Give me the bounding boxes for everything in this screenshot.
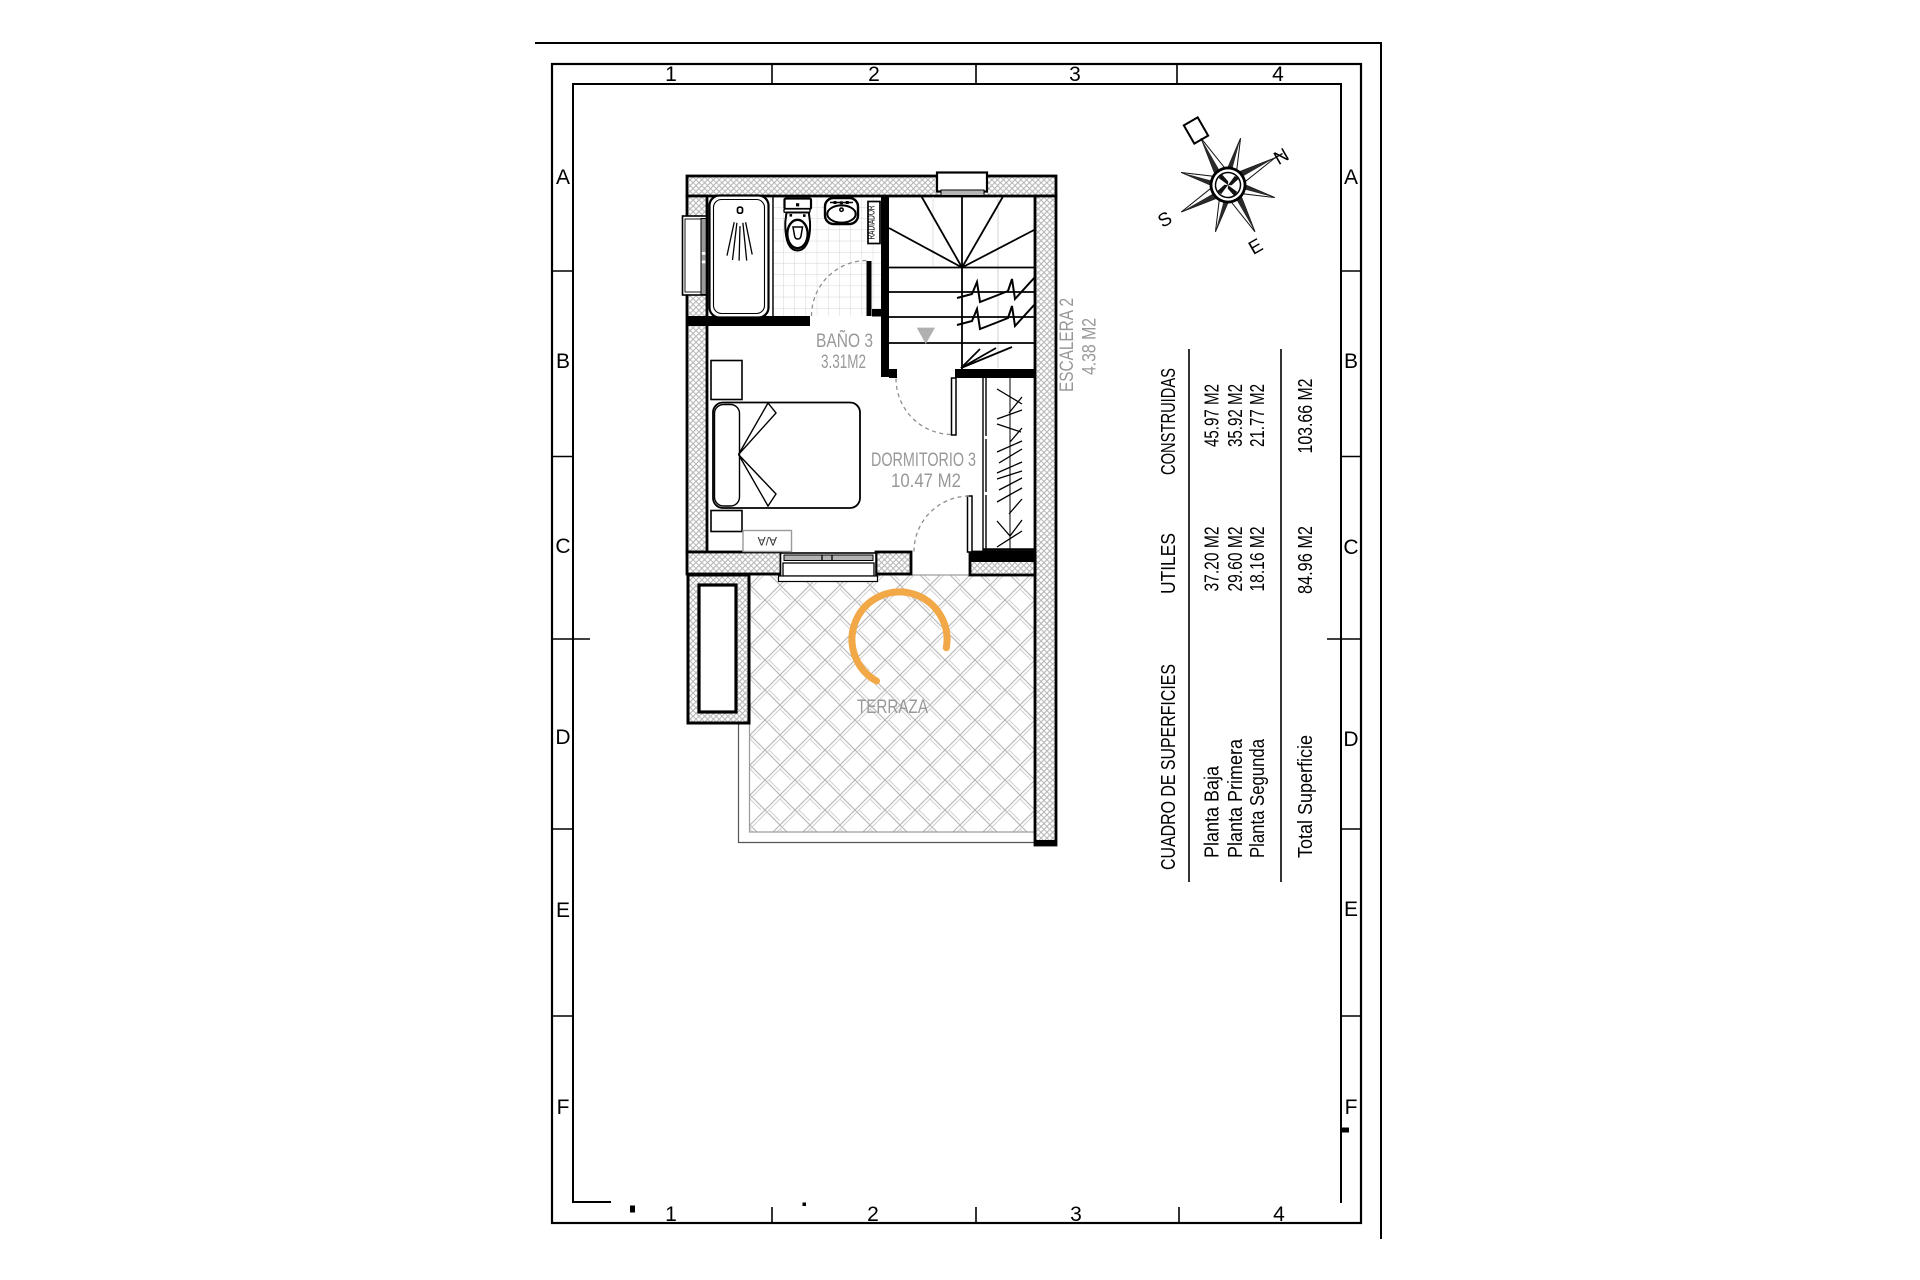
svg-text:D: D [555, 726, 570, 749]
svg-text:37.20 M2: 37.20 M2 [1202, 527, 1224, 592]
svg-text:CUADRO DE SUPERFICIES: CUADRO DE SUPERFICIES [1158, 664, 1180, 870]
svg-text:3: 3 [1070, 1203, 1082, 1226]
svg-text:ESCALERA 2: ESCALERA 2 [1057, 298, 1078, 392]
svg-text:CONSTRUIDAS: CONSTRUIDAS [1158, 368, 1180, 475]
svg-text:Planta Primera: Planta Primera [1225, 738, 1247, 858]
svg-text:4: 4 [1272, 63, 1284, 86]
svg-text:UTILES: UTILES [1158, 533, 1180, 594]
svg-text:B: B [556, 350, 570, 373]
svg-text:BAÑO 3: BAÑO 3 [816, 330, 873, 352]
svg-text:S: S [1155, 208, 1176, 233]
svg-text:84.96 M2: 84.96 M2 [1295, 526, 1317, 594]
svg-text:N: N [1271, 145, 1293, 170]
svg-text:21.77 M2: 21.77 M2 [1247, 384, 1269, 447]
svg-text:F: F [1345, 1096, 1358, 1119]
svg-text:45.97 M2: 45.97 M2 [1202, 384, 1224, 447]
svg-text:Planta Baja: Planta Baja [1202, 765, 1224, 858]
svg-text:DORMITORIO 3: DORMITORIO 3 [871, 450, 976, 471]
svg-text:E: E [1245, 235, 1266, 260]
svg-text:TERRAZA: TERRAZA [857, 697, 928, 718]
svg-text:4: 4 [1273, 1203, 1285, 1226]
svg-text:18.16 M2: 18.16 M2 [1247, 527, 1269, 592]
svg-text:A: A [556, 166, 570, 189]
svg-text:B: B [1344, 350, 1358, 373]
svg-text:103.66 M2: 103.66 M2 [1295, 379, 1317, 454]
svg-text:3.31M2: 3.31M2 [821, 352, 866, 373]
svg-text:2: 2 [867, 1203, 879, 1226]
svg-text:E: E [1344, 898, 1358, 921]
svg-text:D: D [1343, 728, 1358, 751]
svg-text:Total Superficie: Total Superficie [1295, 735, 1317, 858]
svg-text:E: E [556, 899, 570, 922]
svg-text:4.38 M2: 4.38 M2 [1080, 318, 1101, 375]
svg-text:RADIADOR: RADIADOR [867, 206, 878, 240]
svg-text:2: 2 [868, 63, 880, 86]
svg-text:A: A [1344, 166, 1358, 189]
svg-text:29.60 M2: 29.60 M2 [1225, 527, 1247, 592]
svg-text:1: 1 [665, 1203, 677, 1226]
svg-text:A/A: A/A [758, 534, 777, 548]
svg-text:3: 3 [1069, 63, 1081, 86]
svg-text:C: C [1343, 536, 1358, 559]
svg-text:F: F [557, 1096, 570, 1119]
svg-text:10.47 M2: 10.47 M2 [891, 471, 961, 492]
svg-text:35.92 M2: 35.92 M2 [1225, 384, 1247, 447]
svg-text:1: 1 [665, 63, 677, 86]
svg-text:Planta Segunda: Planta Segunda [1247, 738, 1269, 858]
svg-text:C: C [555, 535, 570, 558]
